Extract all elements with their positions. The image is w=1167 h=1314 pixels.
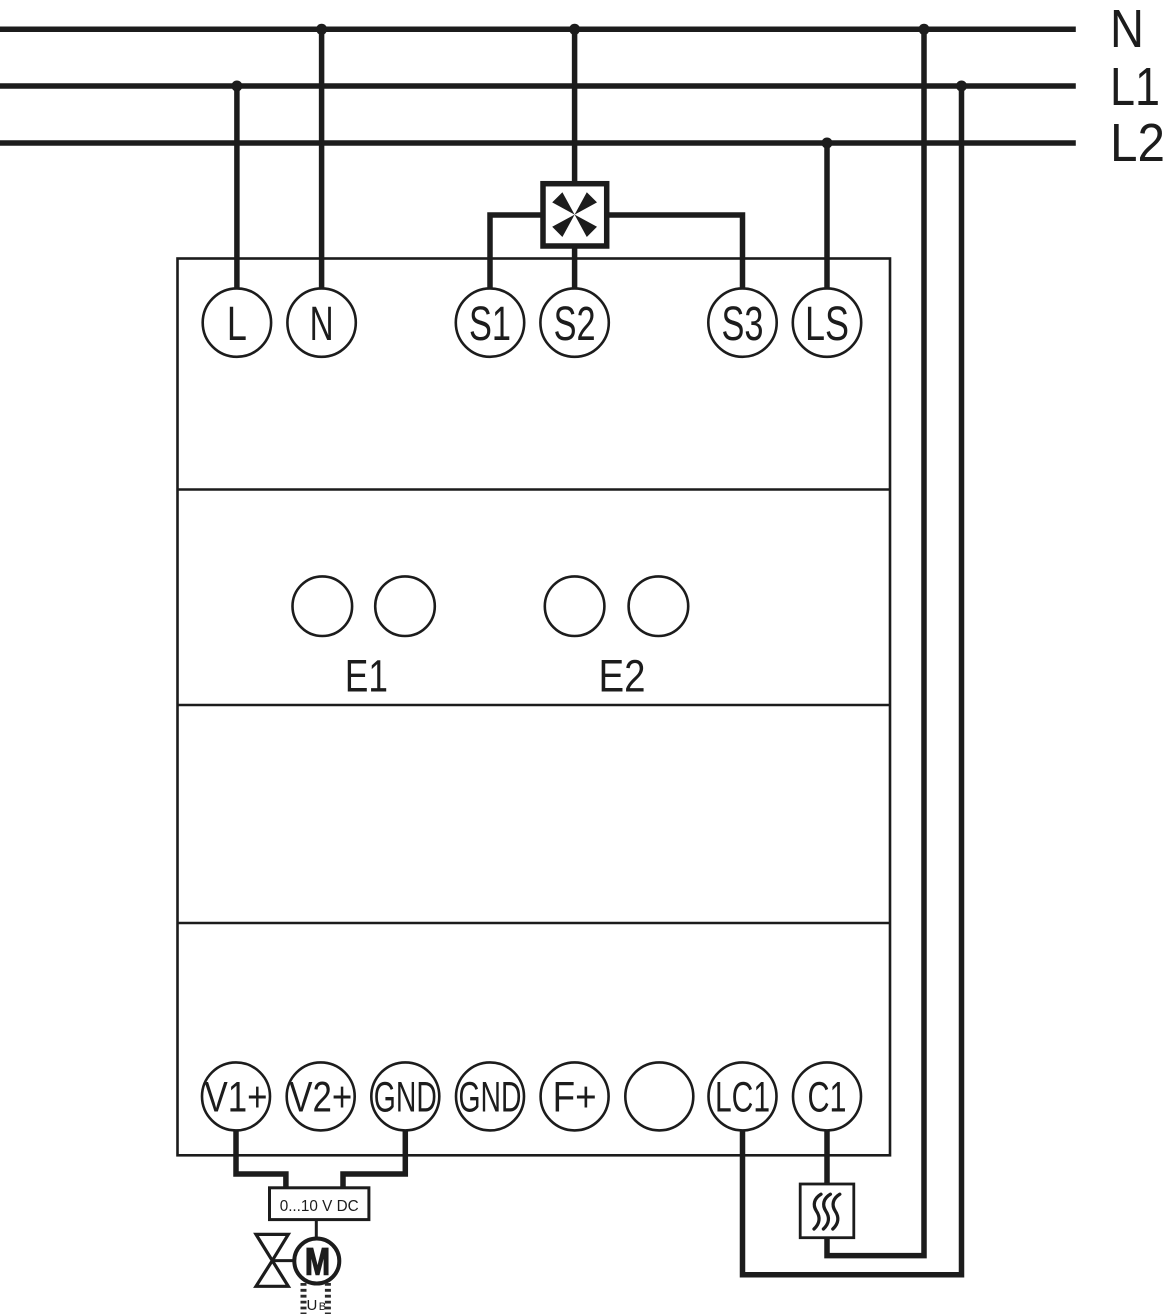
svg-text:E2: E2: [599, 650, 646, 701]
svg-text:L2: L2: [1110, 113, 1165, 173]
svg-text:N: N: [1110, 0, 1144, 59]
svg-text:C1: C1: [808, 1074, 847, 1122]
svg-text:S1: S1: [469, 298, 511, 351]
svg-text:GND: GND: [374, 1074, 437, 1122]
svg-text:E1: E1: [345, 650, 388, 701]
svg-text:V2+: V2+: [289, 1074, 352, 1122]
svg-text:B: B: [319, 1301, 326, 1313]
svg-text:LS: LS: [805, 298, 849, 351]
svg-text:S3: S3: [722, 298, 764, 351]
svg-text:F+: F+: [553, 1074, 597, 1122]
svg-text:L: L: [227, 298, 247, 351]
svg-text:N: N: [310, 298, 334, 351]
svg-text:L1: L1: [1110, 57, 1160, 117]
svg-text:0...10 V DC: 0...10 V DC: [280, 1198, 359, 1215]
svg-text:M: M: [305, 1242, 330, 1284]
svg-text:LC1: LC1: [715, 1074, 770, 1122]
svg-text:U: U: [307, 1297, 318, 1314]
svg-text:GND: GND: [459, 1074, 522, 1122]
svg-text:V1+: V1+: [205, 1074, 268, 1122]
svg-text:S2: S2: [554, 298, 596, 351]
